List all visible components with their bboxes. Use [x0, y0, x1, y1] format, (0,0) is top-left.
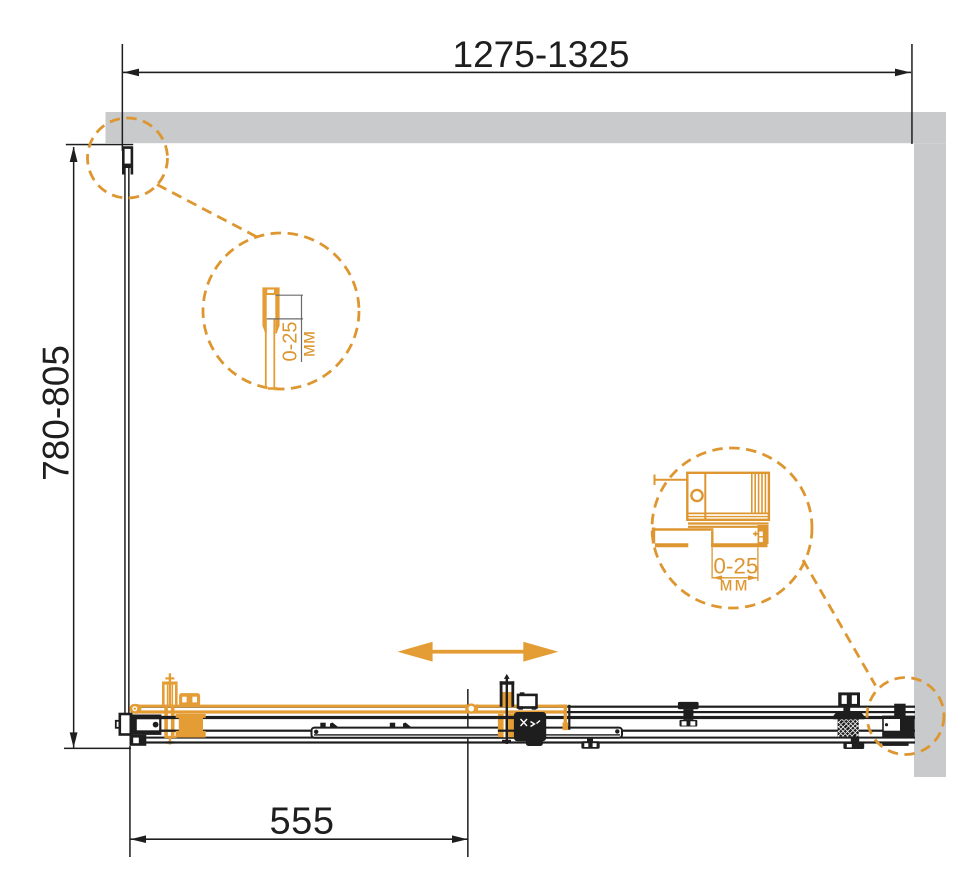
svg-text:555: 555	[270, 801, 335, 843]
svg-text:1275-1325: 1275-1325	[453, 34, 630, 75]
svg-text:мм: мм	[719, 575, 749, 596]
svg-text:780-805: 780-805	[36, 345, 77, 481]
svg-text:мм: мм	[299, 331, 320, 357]
